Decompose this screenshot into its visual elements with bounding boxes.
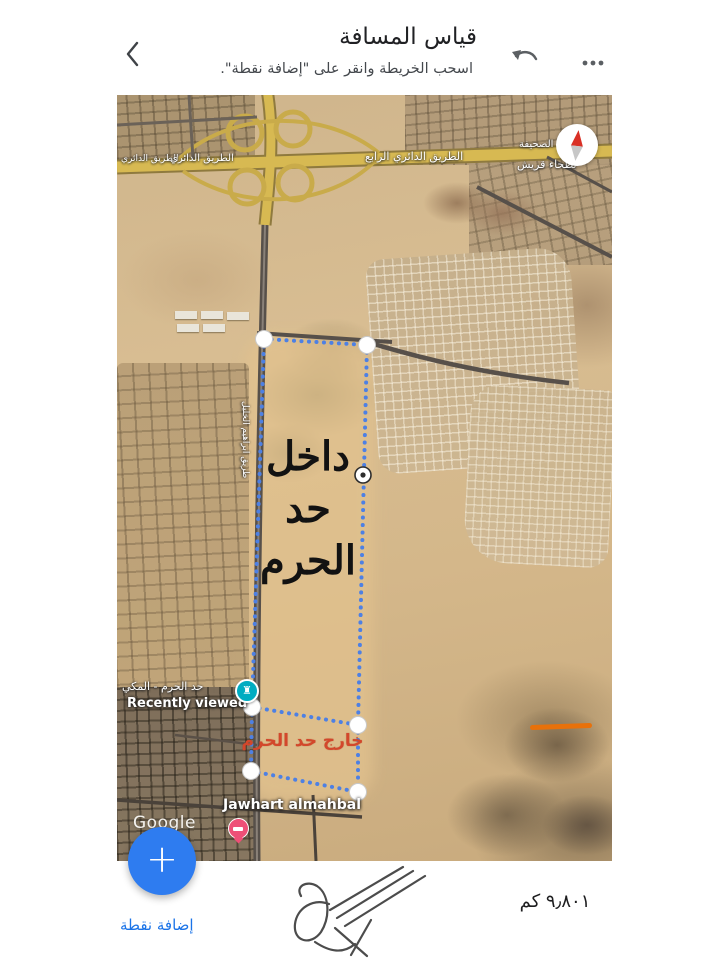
page-subtitle: اسحب الخريطة وانقر على "إضافة نقطة". <box>220 61 473 77</box>
landmark-icon[interactable]: ♜ <box>235 679 259 703</box>
measure-vertex[interactable] <box>359 337 376 354</box>
recently-viewed-label: Recently viewed <box>127 696 247 711</box>
add-point-button[interactable]: إضافة نقطة <box>120 916 194 934</box>
measure-segment <box>251 771 358 792</box>
outside-haram-annotation: خارج حد الحرم <box>235 731 370 751</box>
total-distance-label: ٩٫٨٠١ كم <box>505 891 605 912</box>
measure-vertex[interactable] <box>256 331 273 348</box>
more-options-icon[interactable] <box>581 52 605 71</box>
boundary-place-label: حد الحرم - المكي <box>122 680 203 693</box>
page-title: قياس المسافة <box>339 24 477 50</box>
back-chevron-icon[interactable] <box>124 41 140 71</box>
undo-icon[interactable] <box>511 45 539 69</box>
hotel-pin-icon[interactable] <box>228 818 249 839</box>
signature-scribble <box>285 858 435 958</box>
measure-segment <box>252 707 358 725</box>
bottom-place-label: Jawhart almahbal <box>223 797 361 813</box>
satellite-map[interactable]: الطريق الدائري الطريق الدائري الطريق الد… <box>117 95 612 861</box>
compass-button[interactable] <box>556 124 598 166</box>
measure-vertex[interactable] <box>243 763 260 780</box>
add-point-fab[interactable]: + <box>128 827 196 895</box>
plus-icon: + <box>146 837 178 881</box>
compass-needle-icon <box>554 122 600 168</box>
bed-icon <box>233 827 243 831</box>
measure-segment <box>264 339 367 345</box>
inside-haram-annotation: داخل حد الحرم <box>233 431 383 587</box>
measure-distance-screen: قياس المسافة اسحب الخريطة وانقر على "إضا… <box>0 0 720 959</box>
